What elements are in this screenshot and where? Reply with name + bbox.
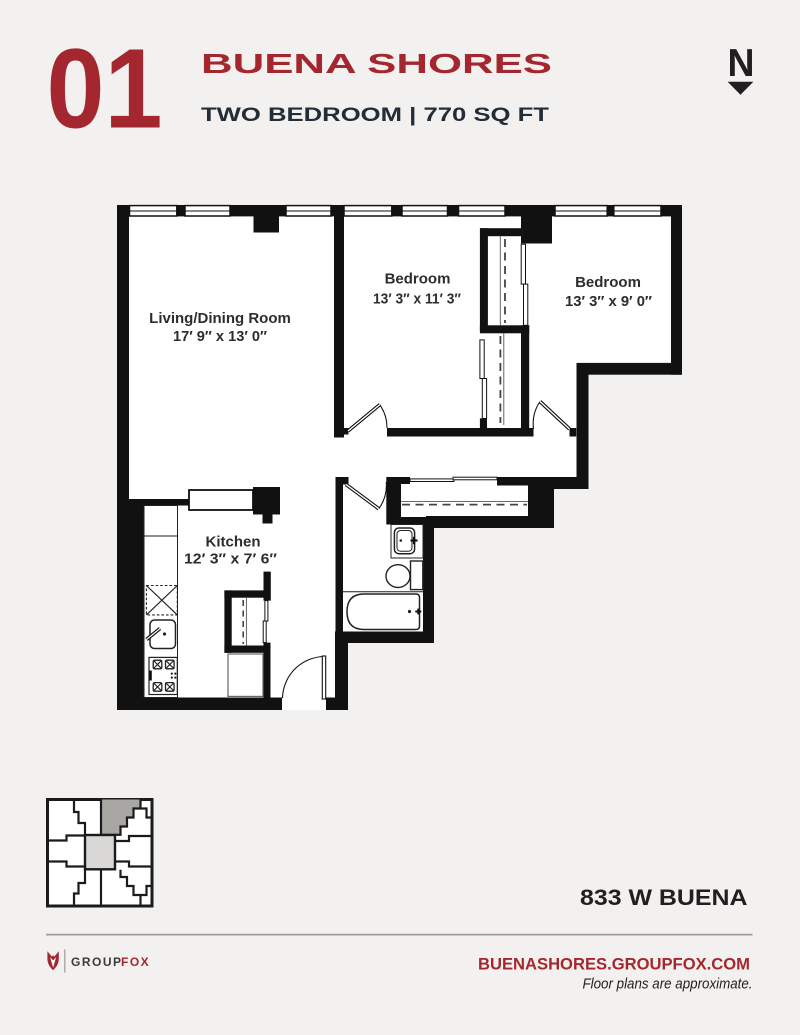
svg-text:Living/Dining Room: Living/Dining Room bbox=[149, 310, 291, 327]
svg-text:BUENASHORES.GROUPFOX.COM: BUENASHORES.GROUPFOX.COM bbox=[478, 955, 750, 974]
svg-text:01: 01 bbox=[47, 26, 163, 152]
svg-text:BUENA SHORES: BUENA SHORES bbox=[201, 48, 552, 79]
svg-text:Kitchen: Kitchen bbox=[205, 534, 260, 551]
svg-text:17′ 9″ x 13′ 0″: 17′ 9″ x 13′ 0″ bbox=[173, 328, 267, 345]
svg-text:GROUP: GROUP bbox=[71, 955, 123, 969]
svg-text:833 W BUENA: 833 W BUENA bbox=[580, 885, 748, 910]
svg-text:12′ 3″ x 7′ 6″: 12′ 3″ x 7′ 6″ bbox=[184, 551, 277, 568]
svg-text:Bedroom: Bedroom bbox=[575, 274, 641, 291]
svg-text:Bedroom: Bedroom bbox=[385, 271, 451, 288]
svg-text:13′ 3″ x 9′ 0″: 13′ 3″ x 9′ 0″ bbox=[565, 293, 652, 310]
svg-text:TWO BEDROOM | 770 SQ FT: TWO BEDROOM | 770 SQ FT bbox=[201, 104, 549, 126]
svg-text:Floor plans are approximate.: Floor plans are approximate. bbox=[583, 977, 753, 993]
svg-text:13′ 3″ x 11′ 3″: 13′ 3″ x 11′ 3″ bbox=[373, 291, 461, 308]
svg-text:N: N bbox=[728, 42, 755, 85]
svg-text:FOX: FOX bbox=[121, 955, 150, 969]
